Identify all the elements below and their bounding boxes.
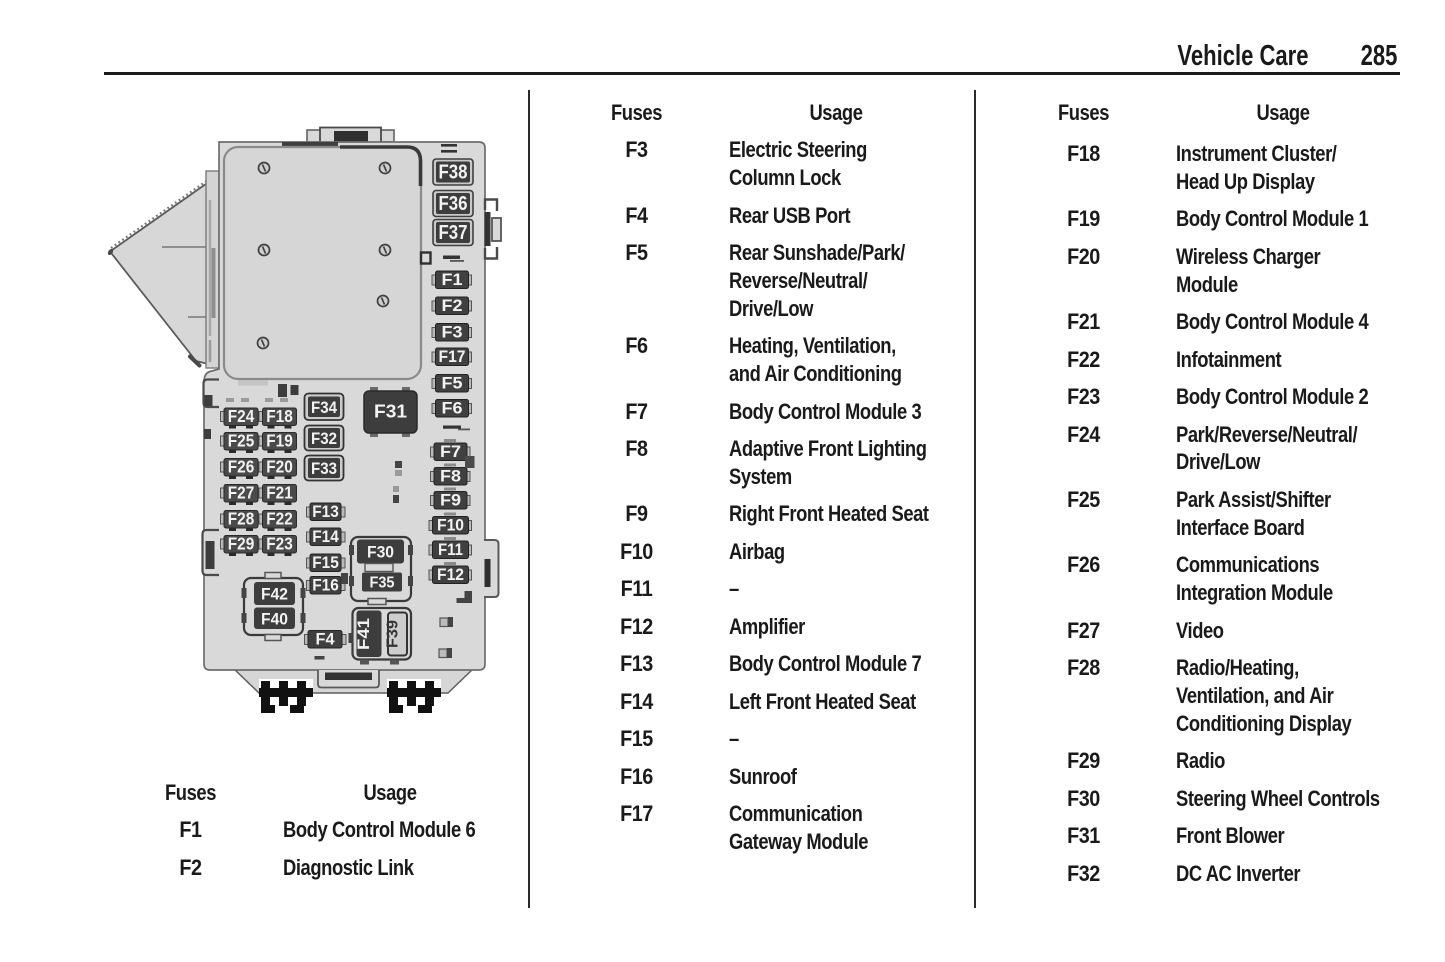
svg-text:F11: F11 — [438, 540, 463, 559]
svg-text:F23: F23 — [266, 534, 293, 554]
svg-text:F7: F7 — [440, 442, 461, 461]
svg-text:F34: F34 — [311, 399, 338, 417]
svg-text:F38: F38 — [439, 162, 468, 184]
svg-text:F35: F35 — [370, 575, 395, 592]
svg-text:F19: F19 — [266, 431, 293, 451]
svg-text:F32: F32 — [311, 430, 337, 448]
svg-text:F9: F9 — [440, 491, 461, 510]
svg-text:F21: F21 — [266, 483, 293, 503]
svg-text:F31: F31 — [374, 402, 407, 422]
svg-text:F17: F17 — [439, 347, 466, 366]
svg-text:F37: F37 — [439, 222, 468, 244]
svg-text:F40: F40 — [261, 611, 288, 629]
svg-text:F1: F1 — [442, 270, 463, 289]
svg-text:F15: F15 — [312, 553, 339, 572]
svg-text:F13: F13 — [312, 502, 339, 521]
svg-text:F27: F27 — [228, 483, 255, 503]
svg-text:F29: F29 — [228, 534, 255, 554]
svg-text:F30: F30 — [367, 544, 394, 562]
svg-text:F14: F14 — [312, 527, 339, 546]
svg-text:F36: F36 — [439, 193, 468, 215]
svg-text:F3: F3 — [442, 323, 463, 342]
svg-text:F18: F18 — [266, 406, 293, 426]
svg-text:F10: F10 — [437, 516, 464, 535]
svg-text:F4: F4 — [316, 631, 336, 649]
svg-text:F33: F33 — [311, 460, 337, 478]
svg-text:F22: F22 — [266, 509, 293, 529]
svg-text:F25: F25 — [228, 431, 255, 451]
svg-text:F6: F6 — [442, 399, 463, 418]
svg-text:F39: F39 — [385, 620, 402, 648]
svg-text:F12: F12 — [437, 565, 464, 584]
svg-text:F28: F28 — [228, 509, 255, 529]
svg-text:F2: F2 — [442, 296, 463, 315]
svg-text:F41: F41 — [354, 618, 373, 650]
svg-text:F42: F42 — [261, 586, 288, 604]
svg-text:F20: F20 — [266, 457, 293, 477]
svg-text:F26: F26 — [228, 457, 255, 477]
svg-text:F16: F16 — [312, 576, 339, 595]
svg-text:F5: F5 — [442, 374, 463, 393]
svg-text:F24: F24 — [228, 406, 255, 426]
svg-text:F8: F8 — [440, 467, 461, 486]
